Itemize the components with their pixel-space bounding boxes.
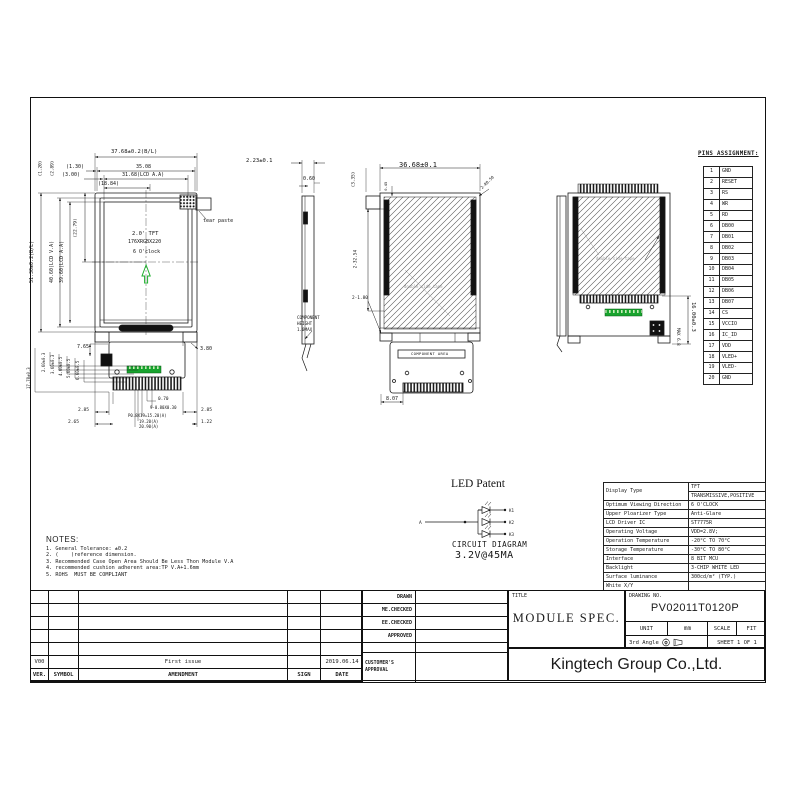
table-row: Upper Ploarizer TypeAnti-Glare <box>604 510 766 519</box>
dim-label: 2.23±0.1 <box>246 159 273 165</box>
approval-label: ME.CHECKED <box>363 604 416 616</box>
pin-name: RD <box>720 210 753 221</box>
pin-number: 13 <box>704 297 720 308</box>
revision-cell <box>321 630 363 643</box>
pin-name: DB04 <box>720 265 753 276</box>
scale-value: FIT <box>737 622 766 635</box>
table-row: Display Type TFT <box>604 483 766 492</box>
revision-table: V00First issue2019.06.14VER.SYMBOLAMENDM… <box>30 590 362 681</box>
revision-cell <box>31 604 49 617</box>
pins-assignment-title: PINS ASSIGNMENT: <box>698 151 759 157</box>
approval-value <box>416 617 507 629</box>
spec-value: ST7775R <box>689 519 766 528</box>
pin-name: VDD <box>720 341 753 352</box>
pin-name: VLED+ <box>720 352 753 363</box>
spec-value: 6 O'CLOCK <box>689 501 766 510</box>
spec-value: 8 BIT MCU <box>689 555 766 564</box>
revision-header-cell: VER. <box>31 669 49 682</box>
pin-name: DB07 <box>720 297 753 308</box>
spec-value: -20°C TO 70°C <box>689 537 766 546</box>
pin-name: DB02 <box>720 243 753 254</box>
dim-label: 4.60±0.5 <box>59 357 63 376</box>
spec-label: Upper Ploarizer Type <box>604 510 689 519</box>
revision-cell <box>79 591 288 604</box>
spec-label: Operating Voltage <box>604 528 689 537</box>
approval-table: DRAWNME.CHECKEDEE.CHECKEDAPPROVED CUSTOM… <box>362 590 508 681</box>
pin-number: 9 <box>704 254 720 265</box>
pin-name: RS <box>720 188 753 199</box>
dim-label: 37.68±0.2(B/L) <box>111 150 157 156</box>
pin-name: DB03 <box>720 254 753 265</box>
dim-label: (2.89) <box>52 161 56 177</box>
dim-label: 2.85 <box>78 409 89 414</box>
pin-row: 15VCCIO <box>704 319 753 330</box>
pin-number: 10 <box>704 265 720 276</box>
dim-label: 2.60±0.3 <box>42 353 46 372</box>
folded-rear-view <box>568 184 670 343</box>
approval-spacer <box>363 643 507 653</box>
dim-label: (1.30) <box>66 165 84 170</box>
spec-label: Interface <box>604 555 689 564</box>
pin-name: DB05 <box>720 275 753 286</box>
dim-label: 2.65 <box>68 421 79 426</box>
revision-cell <box>321 591 363 604</box>
company-cell: Kingtech Group Co.,Ltd. <box>508 648 765 681</box>
dim-label: 3.80 <box>200 347 212 352</box>
dim-label: P0.8X19=15.20(A) <box>128 414 167 418</box>
revision-cell <box>288 604 321 617</box>
pin-number: 1 <box>704 167 720 178</box>
approval-row: EE.CHECKED <box>363 617 507 630</box>
dim-label: 3.60±0.3 <box>51 355 55 374</box>
tape-note: double side tape <box>404 285 443 289</box>
screen-resolution-text: 176XRGBX220 <box>128 240 161 245</box>
spec-label: Display Type <box>604 483 689 501</box>
dim-label: 36.68±0.1 <box>399 162 437 169</box>
revision-cell <box>31 643 49 656</box>
pin-number: 15 <box>704 319 720 330</box>
approval-label: DRAWN <box>363 591 416 603</box>
dim-label: 1.22 <box>201 421 212 426</box>
pin-number: 14 <box>704 308 720 319</box>
pin-number: 11 <box>704 275 720 286</box>
approval-value <box>416 591 507 603</box>
dim-label: 2-32.54 <box>355 250 359 269</box>
pins-assignment-table: 1GND2RESET3RS4WR5RD6DB007DB018DB029DB031… <box>703 166 753 385</box>
pin-name: RESET <box>720 177 753 188</box>
dim-label: 20.90(A) <box>139 425 158 429</box>
notes-title: NOTES: <box>46 535 233 544</box>
revision-cell <box>49 617 79 630</box>
pin-name: VCCIO <box>720 319 753 330</box>
revision-header-cell: DATE <box>321 669 363 682</box>
revision-cell <box>49 591 79 604</box>
approval-value <box>416 630 507 642</box>
front-view <box>92 190 211 390</box>
pin-name: DB00 <box>720 221 753 232</box>
revision-cell <box>49 643 79 656</box>
component-area-label: COMPONENT AREA <box>411 352 449 356</box>
tape-note: double side tape <box>596 257 635 261</box>
approval-value <box>416 604 507 616</box>
revision-cell: V00 <box>31 656 49 669</box>
pin-name: GND <box>720 167 753 178</box>
title-cell: TITLE MODULE SPEC. <box>508 590 625 648</box>
notes-block: NOTES: 1. General Tolerance: ±0.22. ( )r… <box>46 535 233 578</box>
table-row: LCD Driver ICST7775R <box>604 519 766 528</box>
revision-cell: First issue <box>79 656 288 669</box>
dim-label: 0.45 <box>384 182 388 191</box>
rear-view <box>366 193 480 393</box>
dim-label: 0.70 <box>158 398 169 402</box>
cathode-label: K3 <box>509 532 515 537</box>
pin-name: IC_ID <box>720 330 753 341</box>
dim-label: (3.35) <box>353 172 357 188</box>
cathode-label: K2 <box>509 520 515 525</box>
dim-label: 39.60(LCD A.A) <box>60 241 65 283</box>
component-height-note: COMPONENT <box>297 316 320 320</box>
drawing-no-label: DRAWING NO. <box>629 593 662 599</box>
spec-label: Backlight <box>604 564 689 573</box>
pin-row: 14CS <box>704 308 753 319</box>
pin-row: 4WR <box>704 199 753 210</box>
circuit-rating-caption: 3.2V@45MA <box>455 551 514 561</box>
tear-paste-label: tear paste <box>203 219 233 224</box>
pin-number: 12 <box>704 286 720 297</box>
revision-cell <box>288 617 321 630</box>
drawing-number: PV02011T0120P <box>626 602 764 614</box>
dim-label: 9-0.80X0.30 <box>150 406 177 410</box>
pin-number: 2 <box>704 177 720 188</box>
cathode-label: K1 <box>509 508 515 513</box>
revision-cell <box>79 630 288 643</box>
dim-label: (22.79) <box>74 218 79 237</box>
pin-row: 7DB01 <box>704 232 753 243</box>
pin-number: 7 <box>704 232 720 243</box>
note-item: 5. ROHS MUST BE COMPLIANT <box>46 572 233 578</box>
dim-label: 5.60±0.5 <box>67 359 71 378</box>
approval-label: APPROVED <box>363 630 416 642</box>
revision-cell <box>79 617 288 630</box>
approval-row: APPROVED <box>363 630 507 643</box>
pin-row: 1GND <box>704 167 753 178</box>
revision-cell <box>288 591 321 604</box>
screen-viewing-text: 6 O'clock <box>133 250 160 255</box>
dim-label: 19.20(A) <box>139 420 158 424</box>
circuit-diagram-caption: CIRCUIT DIAGRAM <box>452 541 527 549</box>
pin-name: WR <box>720 199 753 210</box>
screen-size-text: 2.0' TFT <box>132 232 159 238</box>
customer-approval-cell: CUSTOMER'S APPROVAL <box>363 653 507 682</box>
pin-number: 8 <box>704 243 720 254</box>
pin-number: 18 <box>704 352 720 363</box>
pin-row: 8DB02 <box>704 243 753 254</box>
revision-cell <box>321 604 363 617</box>
pin-number: 20 <box>704 373 720 384</box>
pin-row: 12DB06 <box>704 286 753 297</box>
led-circuit-diagram: A K1 K2 K3 <box>415 495 525 545</box>
unit-value: mm <box>668 622 708 635</box>
pin-number: 17 <box>704 341 720 352</box>
company-name: Kingtech Group Co.,Ltd. <box>509 656 764 674</box>
spec-value: VDD=2.8V; <box>689 528 766 537</box>
table-row: Interface8 BIT MCU <box>604 555 766 564</box>
module-spec-title: MODULE SPEC. <box>509 611 624 626</box>
third-angle-projection-icon <box>661 638 685 647</box>
spec-value: TRANSMISSIVE,POSITIVE <box>689 492 766 501</box>
spec-value: 3-CHIP WHITE LED <box>689 564 766 573</box>
component-height-note: HEIGHT <box>297 322 312 326</box>
spec-label: LCD Driver IC <box>604 519 689 528</box>
revision-header-cell: SIGN <box>288 669 321 682</box>
revision-cell <box>49 656 79 669</box>
pin-number: 6 <box>704 221 720 232</box>
revision-cell <box>31 630 49 643</box>
unit-label: UNIT <box>626 622 668 635</box>
dim-label: 51.30±0.2(B/L) <box>30 241 35 283</box>
pin-number: 4 <box>704 199 720 210</box>
dim-label: (18.84) <box>98 182 119 187</box>
pin-row: 18VLED+ <box>704 352 753 363</box>
revision-cell <box>288 656 321 669</box>
led-patent-title: LED Patent <box>451 479 505 491</box>
dim-label: 31.68(LCD A.A) <box>122 173 164 178</box>
spec-table: Display Type TFT TRANSMISSIVE,POSITIVE O… <box>603 482 766 591</box>
dim-label: 2-1.80 <box>352 297 368 301</box>
table-row: Optimum Viewing Direction6 O'CLOCK <box>604 501 766 510</box>
pin-row: 6DB00 <box>704 221 753 232</box>
pin-row: 19VLED- <box>704 363 753 374</box>
revision-cell <box>49 630 79 643</box>
pin-row: 10DB04 <box>704 265 753 276</box>
pin-number: 16 <box>704 330 720 341</box>
table-row: Storage Temperature-30°C TO 80°C <box>604 546 766 555</box>
table-row: Surface luminance300cd/m² (TYP.) <box>604 573 766 582</box>
revision-header-cell: SYMBOL <box>49 669 79 682</box>
revision-cell <box>288 643 321 656</box>
scale-label: SCALE <box>708 622 737 635</box>
revision-header-cell: AMENDMENT <box>79 669 288 682</box>
approval-label: EE.CHECKED <box>363 617 416 629</box>
pin-row: 3RS <box>704 188 753 199</box>
pin-number: 3 <box>704 188 720 199</box>
spec-value: -30°C TO 80°C <box>689 546 766 555</box>
revision-cell <box>321 643 363 656</box>
spec-value: Anti-Glare <box>689 510 766 519</box>
dim-label: (1.20) <box>40 161 44 177</box>
revision-cell <box>79 643 288 656</box>
dim-label: 2.85 <box>201 409 212 414</box>
pin-name: VLED- <box>720 363 753 374</box>
spec-value: 300cd/m² (TYP.) <box>689 573 766 582</box>
table-row: Backlight3-CHIP WHITE LED <box>604 564 766 573</box>
revision-cell <box>288 630 321 643</box>
pin-name: CS <box>720 308 753 319</box>
spec-value: TFT <box>689 483 766 492</box>
engineering-drawing-sheet: { "page": { "bg": "#ffffff", "ink": "#1a… <box>0 0 800 800</box>
dim-label: 6.60±0.5 <box>76 361 80 380</box>
pin-row: 20GND <box>704 373 753 384</box>
drawing-no-cell: DRAWING NO. PV02011T0120P UNIT mm SCALE … <box>625 590 765 648</box>
approval-row: ME.CHECKED <box>363 604 507 617</box>
dim-label: 7.65 <box>77 345 89 350</box>
pin-row: 11DB05 <box>704 275 753 286</box>
spec-label: Operation Temperature <box>604 537 689 546</box>
dim-label: 17.78±0.3 <box>27 367 31 389</box>
spec-label: Storage Temperature <box>604 546 689 555</box>
pin-row: 9DB03 <box>704 254 753 265</box>
pin-number: 5 <box>704 210 720 221</box>
dim-label: (3.00) <box>62 173 80 178</box>
dim-label: MAX 6.8 <box>676 328 680 346</box>
pin-row: 2RESET <box>704 177 753 188</box>
projection-angle-label: 3rd Angle <box>629 640 659 646</box>
revision-cell: 2019.06.14 <box>321 656 363 669</box>
dim-label: 40.60(LCD V.A) <box>50 241 55 283</box>
title-label: TITLE <box>512 593 527 599</box>
component-height-note: 1.0MAX <box>297 328 312 332</box>
table-row: Operating VoltageVDD=2.8V; <box>604 528 766 537</box>
dim-label: 0.60 <box>303 177 315 182</box>
spec-label: Optimum Viewing Direction <box>604 501 689 510</box>
spec-label: Surface luminance <box>604 573 689 582</box>
side-view-2 <box>557 196 566 352</box>
revision-cell <box>79 604 288 617</box>
customer-approval-label: APPROVAL <box>365 668 415 674</box>
dim-label: 8.07 <box>386 397 398 402</box>
revision-cell <box>321 617 363 630</box>
pin-row: 13DB07 <box>704 297 753 308</box>
pin-name: DB06 <box>720 286 753 297</box>
revision-cell <box>49 604 79 617</box>
revision-cell <box>31 617 49 630</box>
table-row: Operation Temperature-20°C TO 70°C <box>604 537 766 546</box>
dim-label: 16.00±0.3 <box>690 302 696 332</box>
pin-row: 16IC_ID <box>704 330 753 341</box>
side-view <box>291 160 325 371</box>
dim-label: 35.08 <box>136 165 151 170</box>
revision-cell <box>31 591 49 604</box>
pin-name: GND <box>720 373 753 384</box>
pin-row: 5RD <box>704 210 753 221</box>
anode-label: A <box>419 520 422 526</box>
approval-row: DRAWN <box>363 591 507 604</box>
pin-name: DB01 <box>720 232 753 243</box>
pin-number: 19 <box>704 363 720 374</box>
pin-row: 17VDD <box>704 341 753 352</box>
